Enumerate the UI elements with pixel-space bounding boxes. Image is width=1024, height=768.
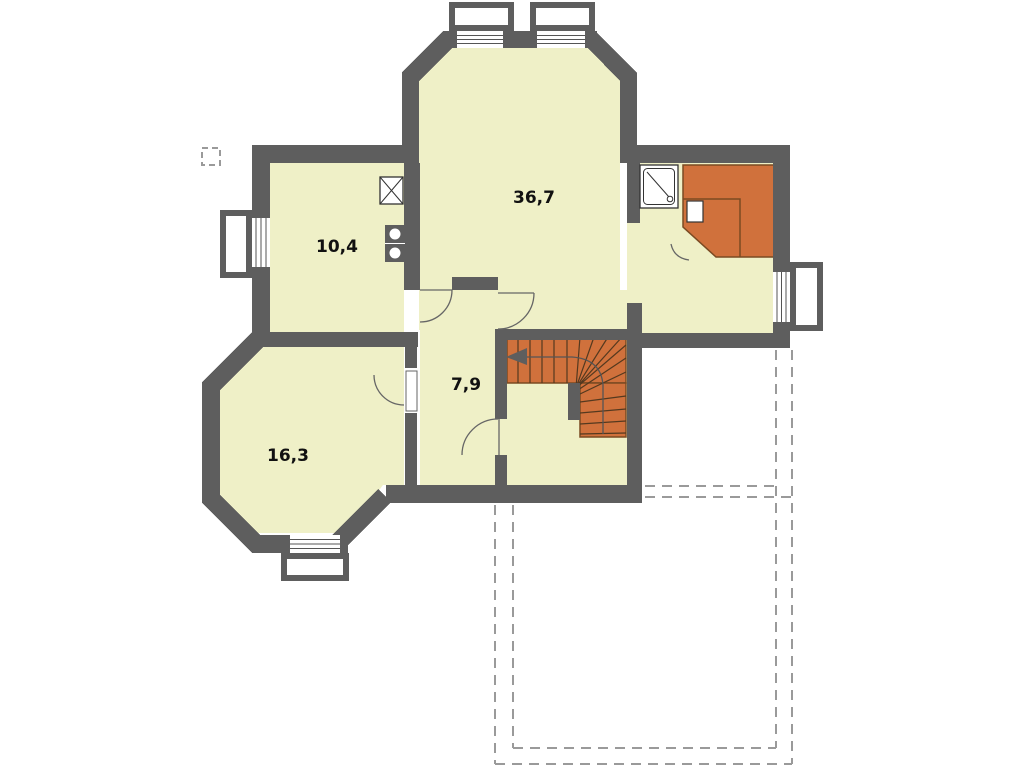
sauna-heater-icon xyxy=(687,201,703,222)
shower-drain xyxy=(667,196,673,202)
wall-west-upper xyxy=(252,145,270,218)
burner-1 xyxy=(390,229,401,240)
wall-right-north xyxy=(620,145,790,163)
label-kitchen: 10,4 xyxy=(316,237,358,257)
wall-kitchen-north xyxy=(252,145,419,163)
window-frame-inner xyxy=(536,8,589,25)
wall-stairs-north xyxy=(495,329,642,340)
wall-west-lower xyxy=(252,267,270,332)
window-frame-inner xyxy=(796,268,817,325)
door-leaf xyxy=(406,371,417,411)
window-frame-inner xyxy=(287,559,343,575)
wall-west-163 xyxy=(202,382,220,503)
wall-hall-east-lower xyxy=(495,455,507,488)
window-frame-inner xyxy=(455,8,508,25)
kitchen-sink-icon xyxy=(380,177,403,204)
wall-kitchen-east xyxy=(404,163,420,290)
window-frame-inner xyxy=(226,216,246,272)
wall-stair-newel xyxy=(568,383,580,420)
shower-tray xyxy=(640,165,678,208)
shower-icon xyxy=(640,165,678,208)
label-large-room: 36,7 xyxy=(513,188,555,208)
wall-kitchen-south xyxy=(252,332,418,347)
label-room-bottom-left: 16,3 xyxy=(267,446,309,466)
wall-36-top-pillar-2 xyxy=(503,31,537,48)
wall-36-top-pillar-1 xyxy=(443,31,457,48)
wall-hall-north xyxy=(452,277,498,290)
stove-icon xyxy=(385,225,405,262)
floor-plan-canvas: 36,7 10,4 16,3 7,9 xyxy=(0,0,1024,768)
window-right xyxy=(773,262,823,331)
wall-shower-stub xyxy=(627,163,640,223)
wall-36-west xyxy=(402,72,419,163)
burner-2 xyxy=(390,248,401,259)
wall-right-east-upper xyxy=(773,163,790,272)
wall-hall-west-upper xyxy=(405,347,417,368)
wall-right-south xyxy=(642,333,790,348)
wall-hall-east-upper xyxy=(495,340,507,419)
floor-plan-page: 36,7 10,4 16,3 7,9 xyxy=(0,0,1024,768)
wall-hall-west-lower xyxy=(405,413,417,488)
chimney-outline xyxy=(202,148,220,165)
label-hallway: 7,9 xyxy=(451,375,481,395)
window-bottom xyxy=(281,535,349,581)
wall-south-center xyxy=(386,485,642,503)
wall-south-163-left xyxy=(252,535,290,553)
